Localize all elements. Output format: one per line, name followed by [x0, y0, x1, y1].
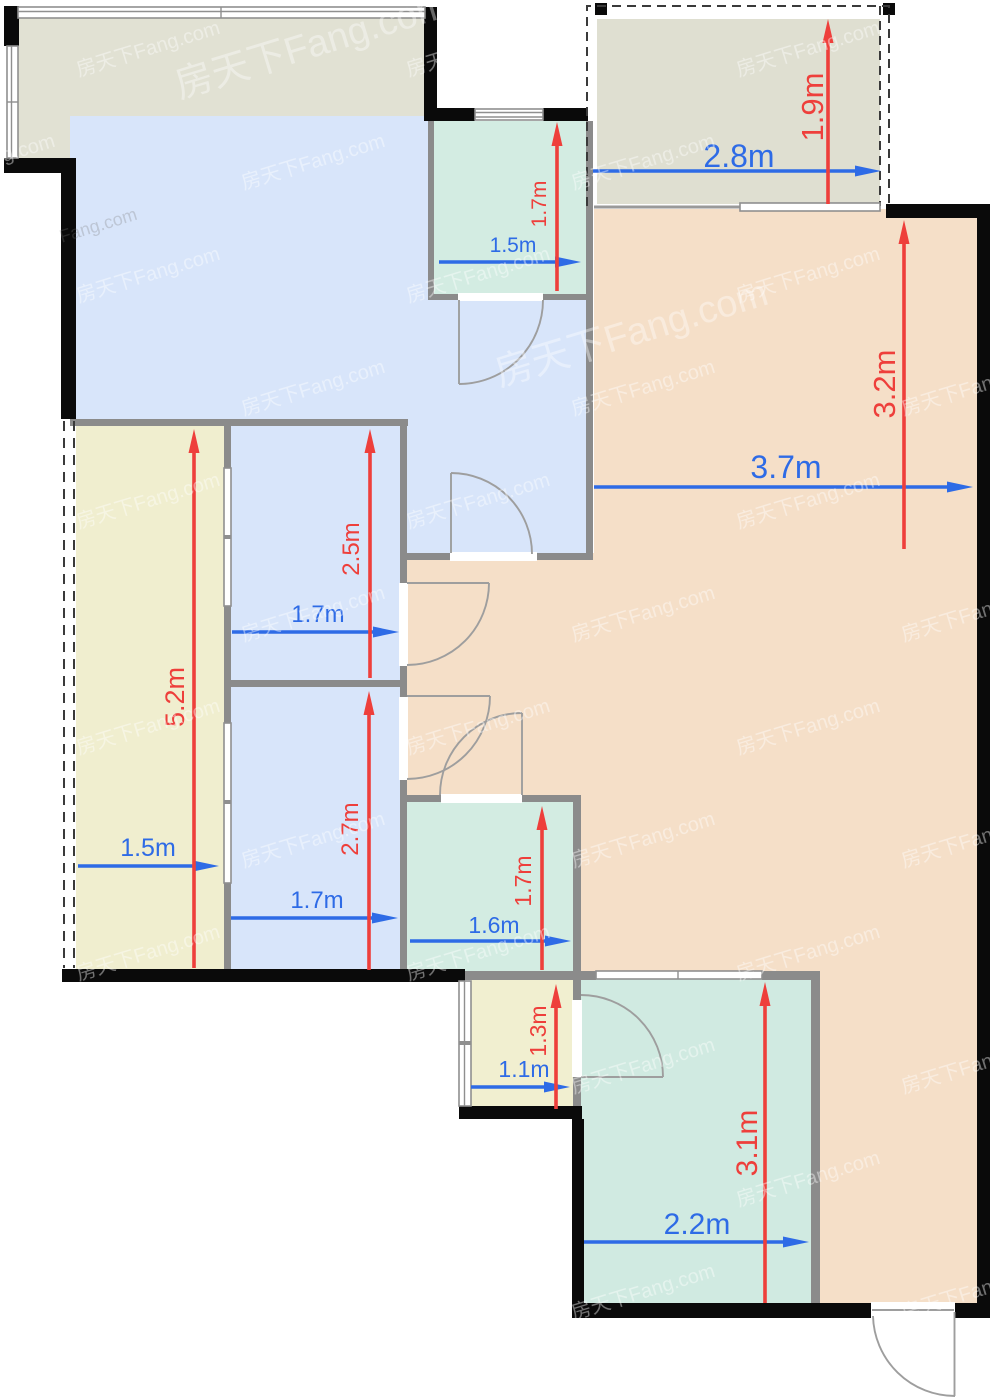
- svg-text:1.7m: 1.7m: [528, 181, 551, 228]
- svg-text:3.2m: 3.2m: [867, 350, 902, 419]
- svg-text:1.9m: 1.9m: [795, 73, 830, 142]
- svg-text:2.2m: 2.2m: [664, 1208, 731, 1241]
- svg-text:3.7m: 3.7m: [750, 449, 821, 485]
- svg-text:3.1m: 3.1m: [731, 1110, 764, 1177]
- svg-text:2.5m: 2.5m: [338, 522, 365, 575]
- svg-text:1.7m: 1.7m: [290, 887, 343, 914]
- svg-text:1.1m: 1.1m: [498, 1056, 549, 1082]
- svg-text:1.5m: 1.5m: [120, 834, 176, 862]
- svg-text:1.3m: 1.3m: [525, 1005, 551, 1056]
- svg-text:1.7m: 1.7m: [510, 855, 536, 906]
